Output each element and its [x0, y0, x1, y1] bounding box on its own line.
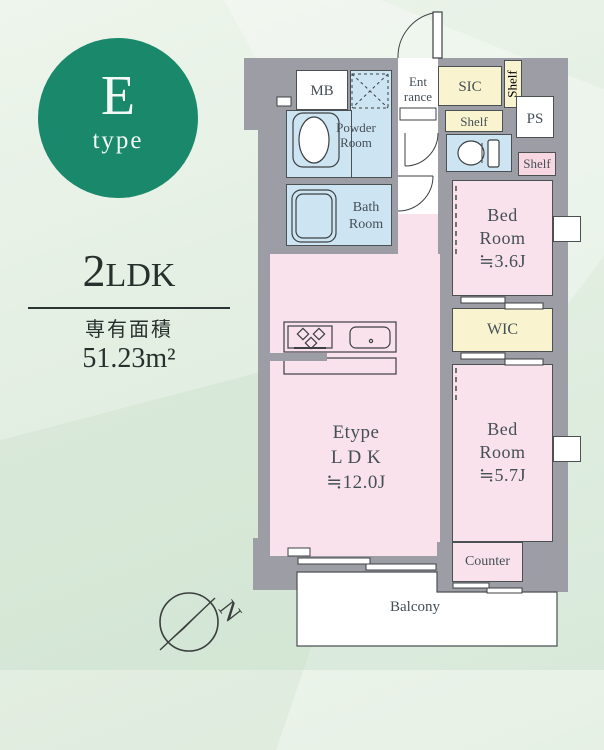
room-bedroom-36: [452, 180, 553, 296]
shelf-entrance: [445, 110, 503, 132]
entrance-door-leaf: [433, 12, 442, 58]
room-entrance-hall: [398, 58, 438, 214]
type-sub-label: type: [38, 126, 198, 156]
room-bath: [286, 184, 392, 246]
room-ps: [516, 96, 554, 138]
info-divider: [28, 307, 230, 309]
hall-to-ldk: [398, 214, 438, 258]
balcony-label: Balcony: [370, 598, 460, 616]
layout-number: 2: [83, 245, 106, 296]
shelf-vertical-label: Shelf: [505, 70, 521, 97]
type-badge: E type: [38, 38, 198, 198]
room-counter: [452, 542, 523, 582]
room-wic: [452, 308, 553, 352]
area-value: 51.23m²: [28, 343, 230, 375]
compass-north-label: N: [213, 595, 248, 628]
room-meter-box: [296, 70, 348, 110]
compass-needle: [160, 598, 215, 650]
room-toilet: [446, 134, 512, 172]
compass-needle-line: [160, 598, 215, 650]
layout-type: LDK: [106, 257, 176, 294]
compass: N: [160, 593, 248, 651]
room-ldk: [270, 254, 440, 556]
wall-topleft-block: [244, 58, 274, 130]
window-bedroom-36: [553, 216, 581, 242]
entrance-door-swing: [398, 13, 433, 58]
window-bedroom-57: [553, 436, 581, 462]
shelf-toilet: [518, 152, 556, 176]
type-letter: E: [38, 66, 198, 126]
area-label: 専有面積: [28, 317, 230, 343]
room-laundry-strip: [350, 70, 392, 178]
compass-circle: [160, 593, 218, 651]
room-bedroom-57: [452, 364, 553, 542]
layout-label: 2LDK: [28, 248, 230, 299]
floorplan-page: { "colors": { "background_green": "#e3ef…: [0, 0, 604, 670]
room-sic: [438, 66, 502, 106]
unit-info: 2LDK 専有面積 51.23m²: [28, 248, 230, 375]
room-powder: [286, 110, 352, 178]
